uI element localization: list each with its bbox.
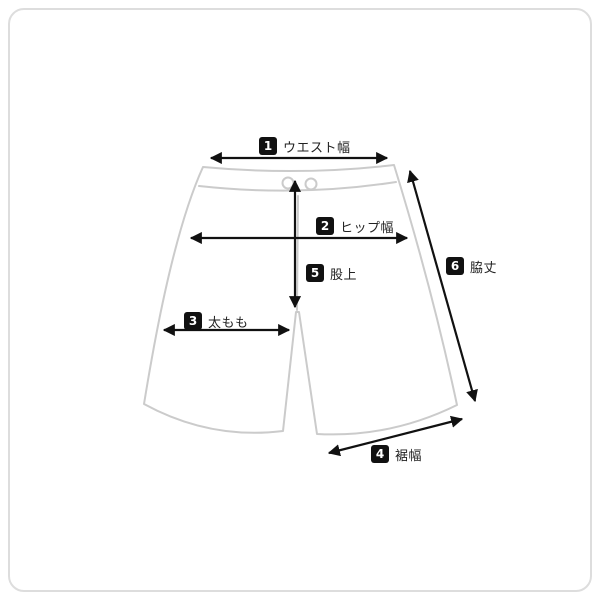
side-length-arrow (410, 171, 475, 401)
label-rise-length: 5 股上 (306, 264, 357, 282)
label-text: 太もも (208, 312, 249, 331)
measurement-arrows (164, 158, 475, 453)
label-waist-width: 1 ウエスト幅 (259, 137, 351, 155)
label-thigh-width: 3 太もも (184, 312, 249, 330)
shorts-measurement-diagram-page: { "colors": { "frame_border": "#dddddd",… (0, 0, 600, 600)
label-text: 脇丈 (470, 257, 497, 276)
label-text: 裾幅 (395, 445, 422, 464)
shorts-outline (144, 165, 457, 434)
shorts-diagram-canvas (0, 0, 600, 600)
shorts-body-outline (144, 165, 457, 434)
label-number-badge: 2 (316, 217, 334, 235)
label-number-badge: 1 (259, 137, 277, 155)
label-number-badge: 6 (446, 257, 464, 275)
center-front-seam (297, 196, 298, 310)
label-number-badge: 4 (371, 445, 389, 463)
label-hip-width: 2 ヒップ幅 (316, 217, 394, 235)
waistband-button-left-icon (283, 178, 294, 189)
label-text: 股上 (330, 264, 357, 283)
waistband-button-right-icon (306, 179, 317, 190)
waistband-seam (199, 182, 396, 191)
label-hem-width: 4 裾幅 (371, 445, 422, 463)
label-number-badge: 5 (306, 264, 324, 282)
label-side-length: 6 脇丈 (446, 257, 497, 275)
label-text: ウエスト幅 (283, 137, 351, 156)
label-text: ヒップ幅 (340, 217, 394, 236)
label-number-badge: 3 (184, 312, 202, 330)
